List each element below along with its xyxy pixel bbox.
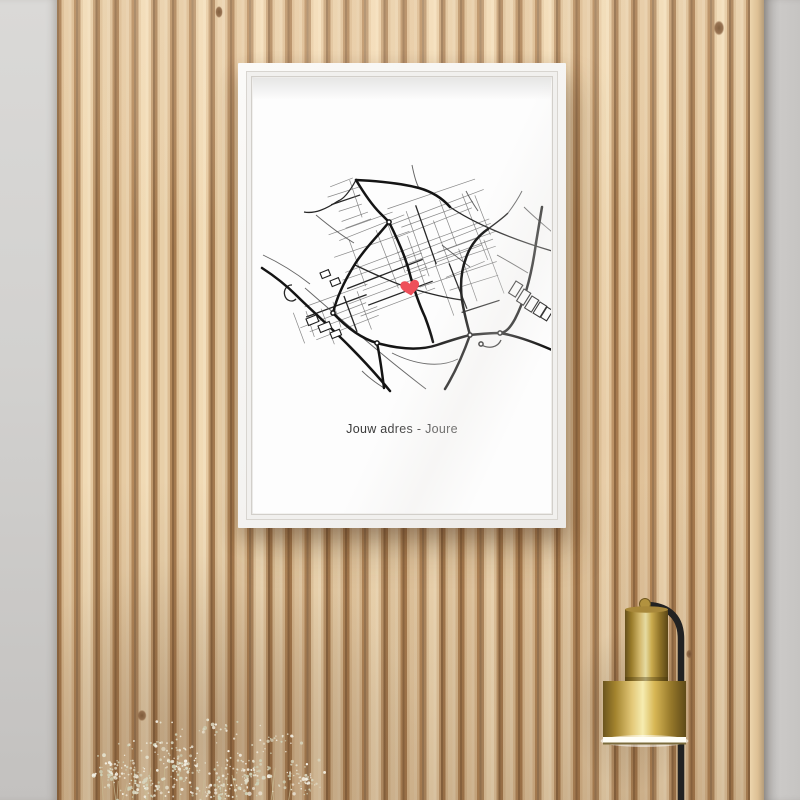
gypsophila-flowers [58,688,348,800]
heart-marker [400,279,421,296]
wood-panel-side-edge [750,0,764,800]
lamp-shade-top [625,606,668,612]
poster-frame: Jouw adres - Joure [238,63,566,528]
poster-title: Jouw adres - Joure [253,422,551,436]
gray-wall-right [764,0,800,800]
wall-lamp [595,593,695,800]
map-graphic [256,95,551,395]
map-poster: Jouw adres - Joure [253,78,551,513]
lamp-shade-lower [603,681,686,740]
lamp-light-rim [603,737,686,743]
scene: Jouw adres - Joure [0,0,800,800]
gray-wall-left [0,0,57,800]
